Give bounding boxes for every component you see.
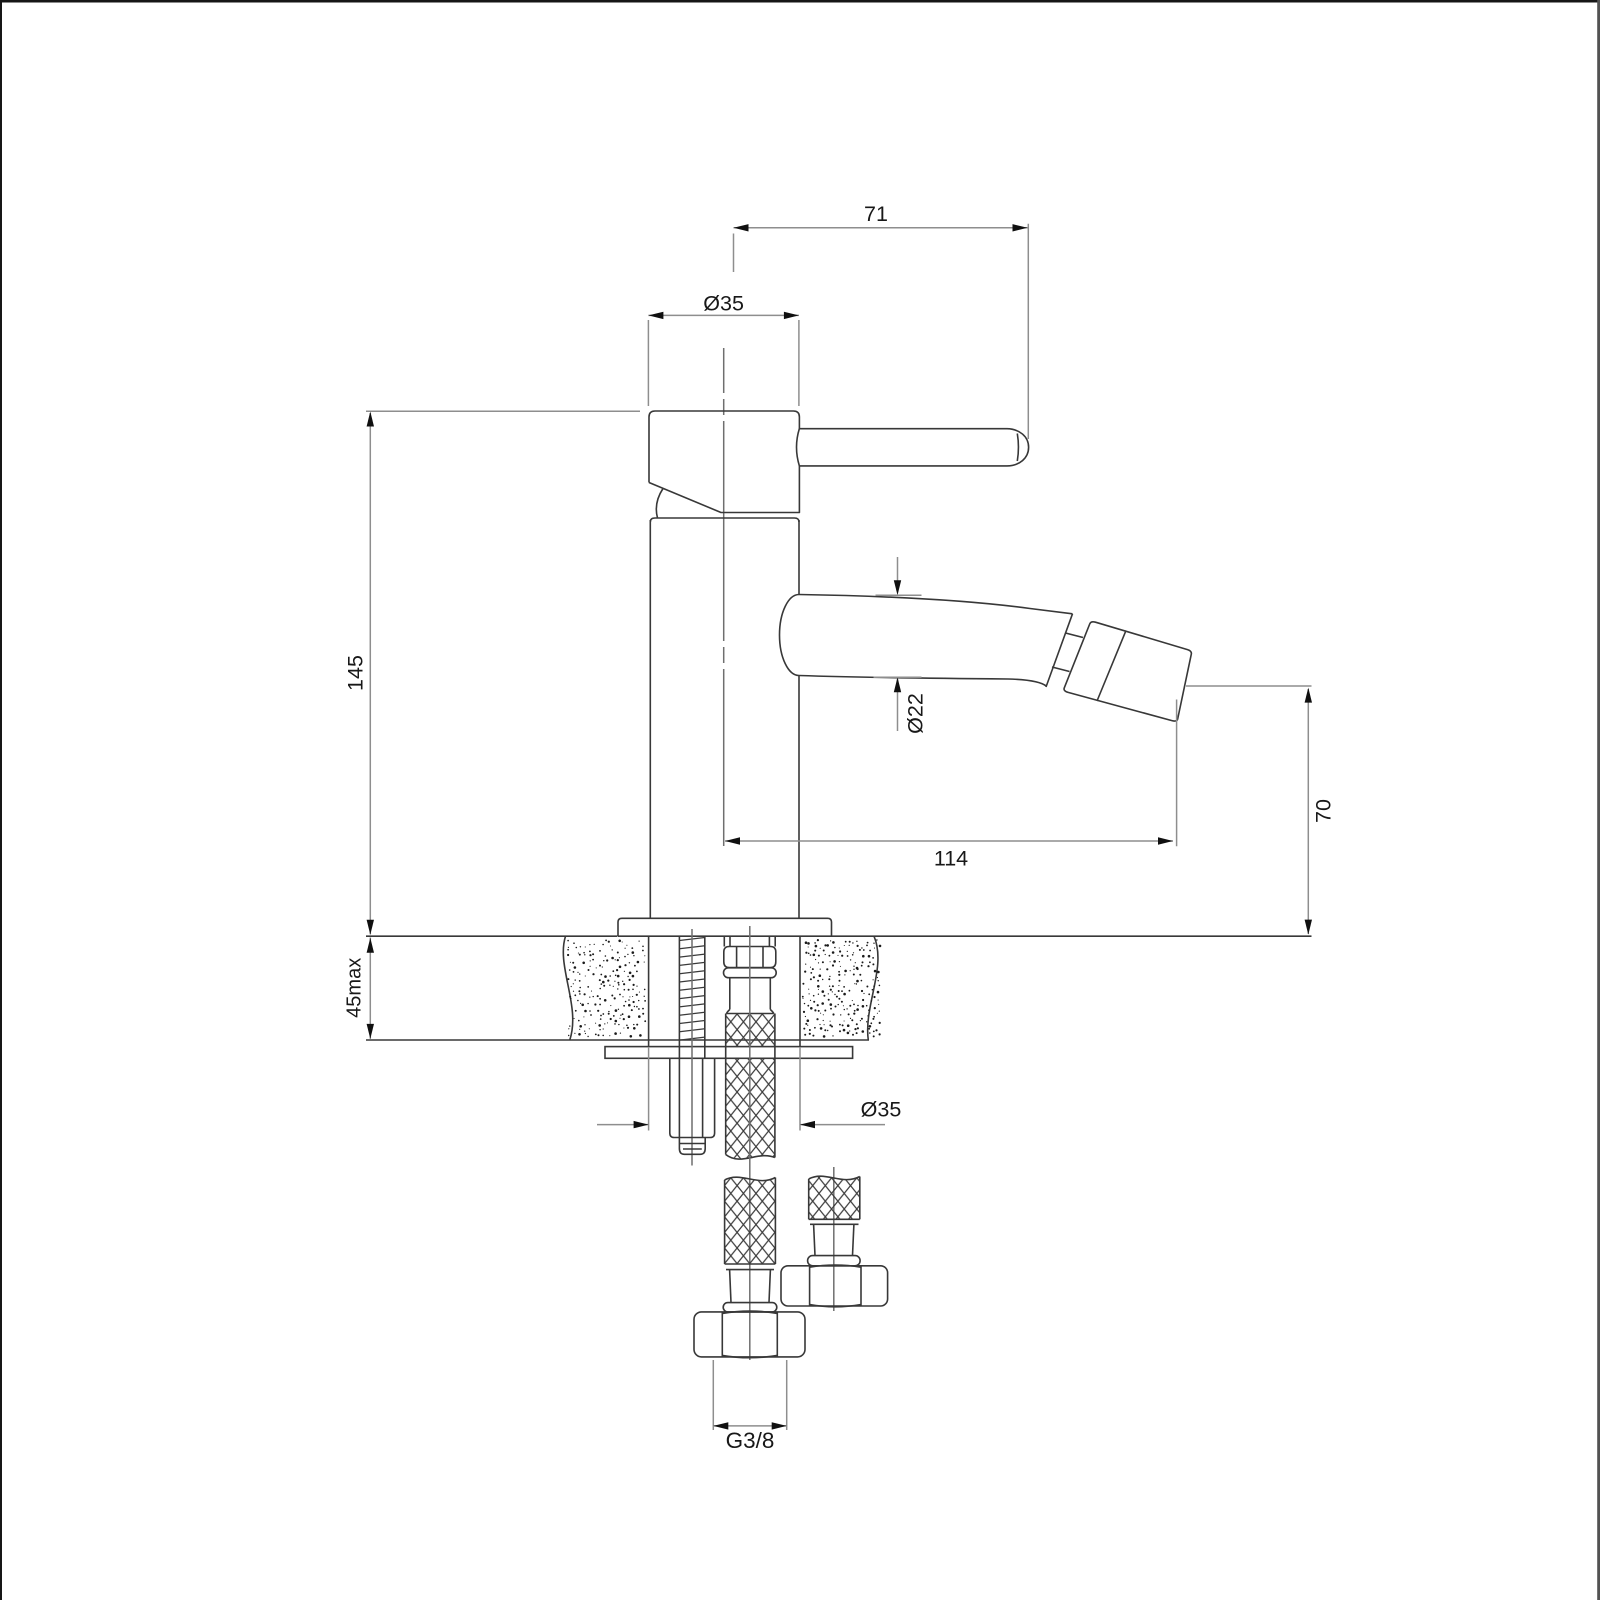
svg-text:Ø22: Ø22 bbox=[904, 693, 928, 734]
svg-text:Ø35: Ø35 bbox=[861, 1098, 902, 1122]
svg-text:114: 114 bbox=[934, 846, 968, 870]
svg-text:71: 71 bbox=[864, 202, 888, 226]
svg-text:G3/8: G3/8 bbox=[726, 1428, 775, 1453]
svg-text:70: 70 bbox=[1312, 799, 1336, 823]
svg-text:45max: 45max bbox=[344, 958, 366, 1018]
svg-text:Ø35: Ø35 bbox=[703, 291, 744, 315]
svg-text:145: 145 bbox=[344, 655, 368, 691]
